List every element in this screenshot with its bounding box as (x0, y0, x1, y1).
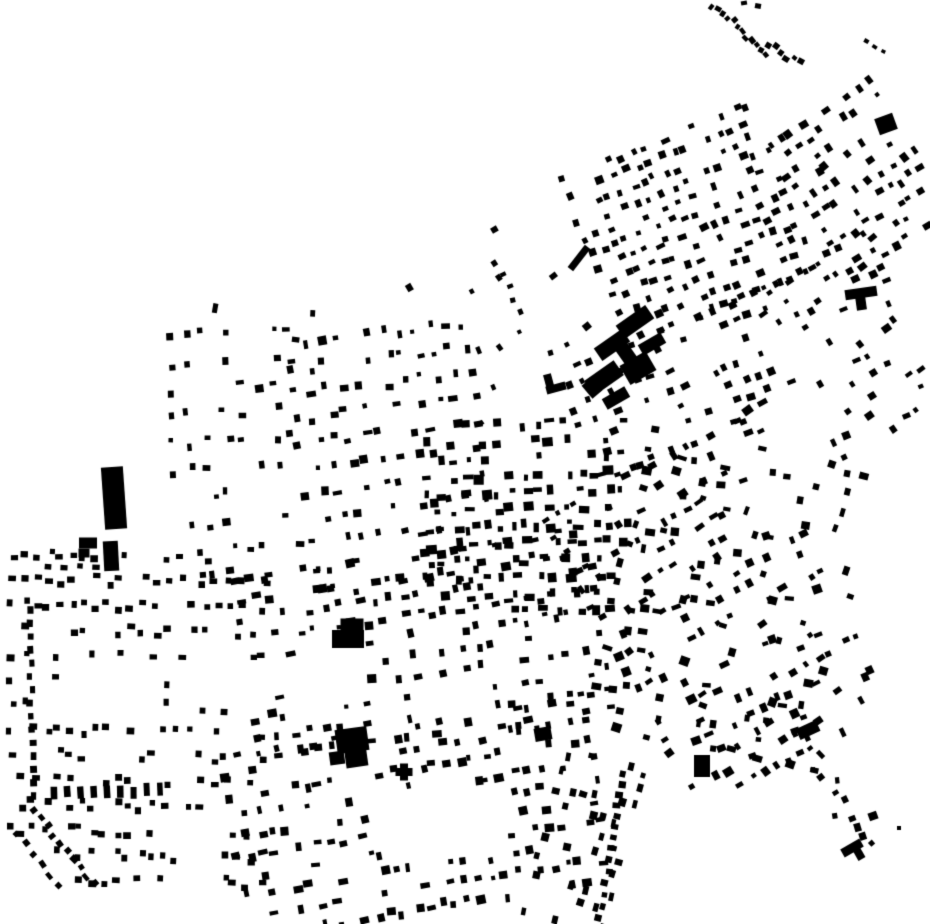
figure-ground-building-map (0, 0, 930, 924)
map-viewport (0, 0, 930, 924)
